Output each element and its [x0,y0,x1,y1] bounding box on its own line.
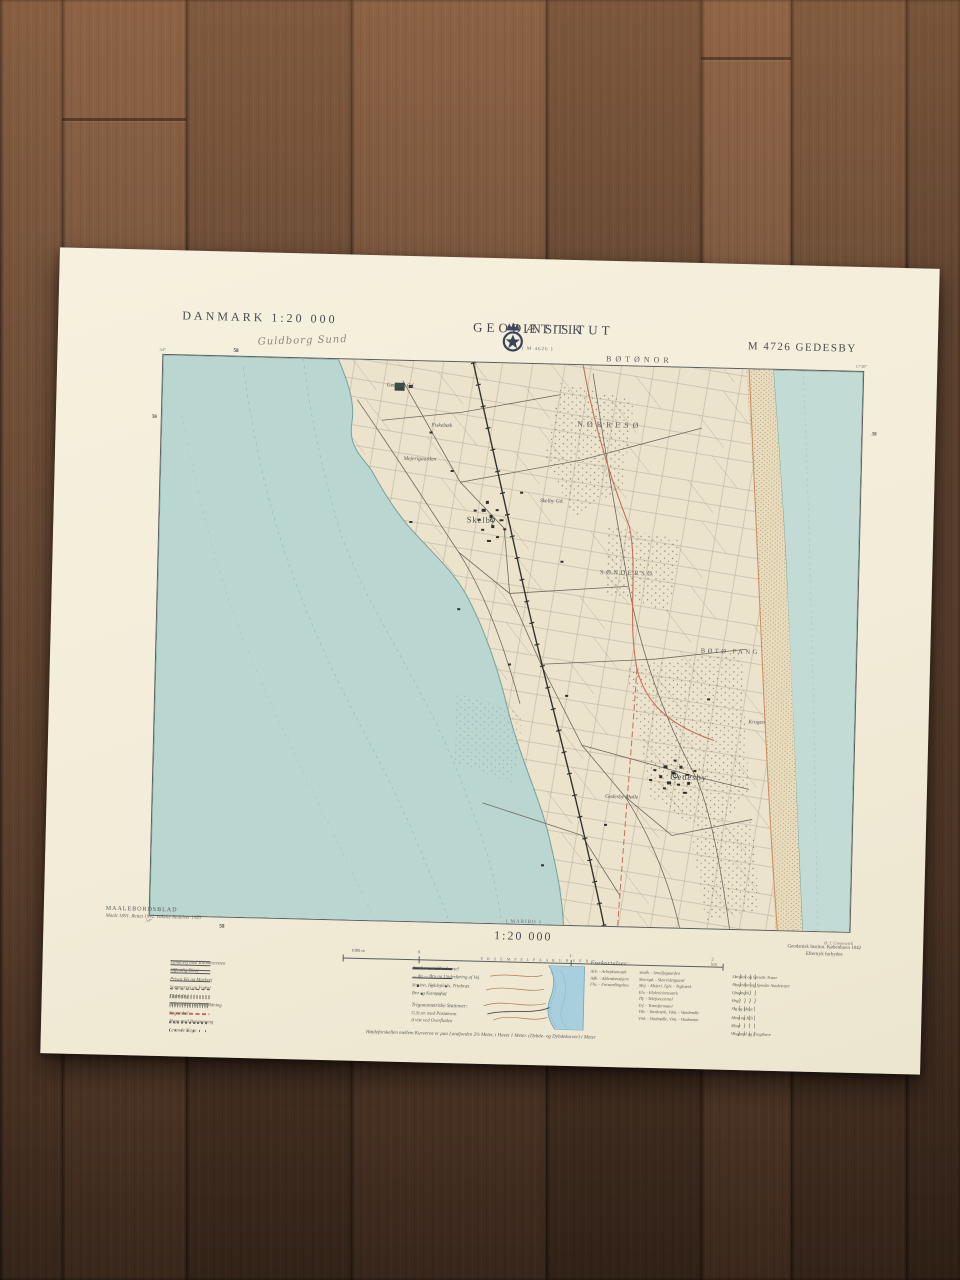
map-place-labels: BØTØNORNØRRESØSØNDERSØBØTØ FANGSkelbySke… [150,355,863,932]
legend-label: — do — Bro og Underføring af Vej [412,974,479,981]
legend-label: Eng [732,998,739,1003]
legend-label: Vingaard og Frugthave [731,1031,771,1037]
place-label: Krogen [748,719,764,725]
legend-label: Sand og Klit [731,1015,753,1021]
corner-coordinate: 54° [159,347,165,352]
legend-label: Sommervej og Fodsti [170,986,211,992]
legend-label: Landevej med Kilometersten [170,960,225,966]
map-sheet-paper: DANMARK 1:20 000 Guldborg Sund GEODÆTISK… [40,247,939,1074]
place-label: Fiskebæk [431,423,452,430]
scale-label: 0 [418,949,420,954]
scale-label: 1000 m [351,948,365,953]
abbr-item: Vml. - Vindmølle, Vmt. - Vindmotor [638,1015,699,1023]
place-label: Skelby [467,514,497,525]
scale-text: 1:20 000 [433,927,613,946]
legend-label: Privat Vej og Markvej [170,977,212,983]
publisher-credit: Geodætisk Institut. København 1942 Efter… [787,943,861,959]
place-label: SØNDERSØ [600,569,654,577]
place-label: Gedesby Mølle [605,794,638,801]
legend-label: Dæmning [170,994,189,999]
legend-label: Mose [731,1023,740,1028]
institute-word-right: INSTITUT [523,321,614,339]
topographic-map: BØTØNORNØRRESØSØNDERSØBØTØ FANGSkelbySke… [149,354,865,933]
place-label: Mejerigaarden [403,456,436,463]
legend-label: Station, Holdeplads, Trinbræt [412,983,469,989]
abbr-item: Fhs. - Forsamlingshus [590,982,629,989]
grid-numbers-right: 36353433 [861,432,872,872]
place-label: Gedsens Gd. [387,383,415,390]
place-label: BØTØNOR [606,355,673,366]
legend-label: Sig og Mose [732,1006,753,1012]
legend-label: Lyngmark [732,990,749,995]
corner-coordinate: 17'30" [856,364,868,369]
legend-label: Sogneskel [169,1011,188,1016]
legend-label: Jernbane m. Overkørsel [412,966,458,972]
series-title: MAALEBORDSBLAD [106,906,178,914]
abbr-column-2: Smdh. - SmedjegaardenSkovrgd. - Skovride… [638,970,700,1023]
legend-label: Løvskov og Spredte Træer [732,974,777,980]
legend-label: Offentlig Bivej [170,969,198,975]
legend-label: Naaleskov og Spredte Naaletræer [732,982,790,988]
place-label: NØRRESØ [577,419,643,430]
legend-label: Afgravning og Paafyldning [169,1003,221,1009]
abbr-column-1: Arb. - ArbejdsanstaltAdh. - Alderdomshje… [589,969,629,1022]
legend-terrain-symbols: Løvskov og Spredte Træer Naaleskov og Sp… [731,972,883,1041]
place-label: BØTØ FANG [701,647,760,655]
grid-numbers-left: 36353433 [141,415,152,855]
inset-diagram [479,964,591,1031]
place-label: Skelby Gd. [540,498,564,505]
series-survey-note: Maalt 1891. Rettet 1942. enkelte Rettels… [106,914,202,921]
credit-line-2: Eftertryk forbydes [787,950,861,959]
place-label: Gedesby [670,771,707,782]
legend-label: Bro og Kæmpehøj [412,991,447,997]
